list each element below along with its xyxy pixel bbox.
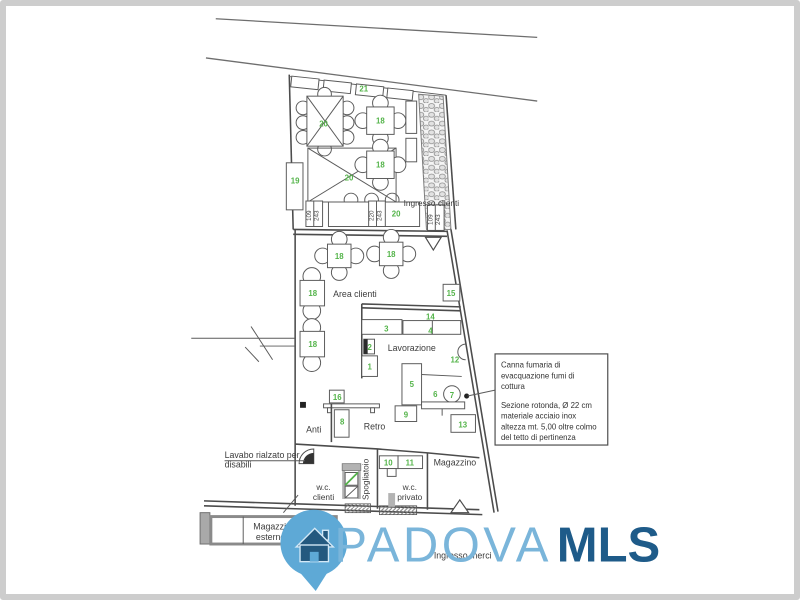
green-label-2: 2: [367, 343, 372, 352]
label-wc-clienti-1: w.c.: [315, 482, 330, 492]
bottom-rooms: [295, 444, 479, 513]
anti-door: [299, 449, 314, 464]
label-wc-privato-2: privato: [397, 492, 422, 502]
dim-243-1: 243: [314, 210, 321, 221]
green-label-21: 21: [359, 84, 368, 93]
note-line-2: evacquazione fumi di: [501, 371, 575, 380]
green-label-7: 7: [450, 391, 455, 400]
counter-3: [362, 320, 402, 335]
green-label-11: 11: [406, 459, 415, 468]
floor-plan-page: 21 20 18 18 20 19 20 18 18 18 18 15 3 14…: [0, 0, 800, 600]
label-ingresso-clienti: Ingresso clienti: [404, 198, 460, 208]
label-lavabo-1: Lavabo rialzato per: [225, 450, 300, 460]
note-line-6: altezza mt. 5,00 oltre colmo: [501, 422, 597, 431]
label-wc-clienti-2: clienti: [313, 492, 334, 502]
green-label-16: 16: [333, 393, 342, 402]
label-lavorazione: Lavorazione: [388, 343, 436, 353]
storefront-row: [293, 201, 447, 250]
green-label-8: 8: [340, 417, 345, 426]
label-anti: Anti: [306, 424, 321, 434]
bottom-wall-inner: [204, 501, 479, 510]
green-label-6: 6: [433, 390, 438, 399]
green-label-3: 3: [384, 324, 389, 333]
green-label-14: 14: [426, 313, 435, 322]
label-area-clienti: Area clienti: [333, 289, 377, 299]
label-lavabo-2: disabili: [225, 460, 252, 470]
right-main-wall-inner: [447, 230, 494, 512]
dim-243-3: 243: [435, 214, 442, 225]
green-label-15: 15: [447, 289, 456, 298]
note-line-1: Canna fumaria di: [501, 361, 561, 370]
shower-fixture: [342, 464, 361, 499]
note-line-7: del tetto di pertinenza: [501, 433, 576, 442]
green-label-4: 4: [428, 326, 433, 335]
green-label-13: 13: [458, 420, 467, 429]
logo-text-padova: PADOVA: [334, 519, 552, 573]
green-label-5: 5: [410, 380, 415, 389]
green-label-18-wall2: 18: [308, 340, 317, 349]
kitchen: [362, 304, 476, 432]
label-wc-privato-1: w.c.: [402, 482, 417, 492]
green-label-18-wall1: 18: [308, 289, 317, 298]
door-sill-1: [345, 504, 370, 513]
note-line-4: Sezione rotonda, Ø 22 cm: [501, 401, 592, 410]
column-dot: [300, 402, 306, 408]
green-label-9: 9: [404, 411, 409, 420]
green-label-20-pergola: 20: [345, 173, 354, 182]
dim-109-2: 109: [427, 214, 434, 225]
label-retro: Retro: [364, 421, 386, 431]
terrace-strip-19: [286, 163, 303, 210]
right-main-wall-outer: [451, 229, 498, 511]
door-post: [388, 493, 395, 507]
label-spogliatoio: Spogliatoio: [361, 458, 371, 500]
green-label-20-storefront: 20: [392, 210, 401, 219]
green-label-1: 1: [367, 363, 372, 372]
green-label-18-terrace2: 18: [376, 161, 385, 170]
floor-plan-svg: 21 20 18 18 20 19 20 18 18 18 18 15 3 14…: [6, 6, 794, 594]
green-label-19: 19: [291, 176, 300, 185]
door-sill-2: [379, 506, 416, 515]
green-label-10: 10: [384, 459, 393, 468]
green-label-20-table: 20: [319, 120, 328, 129]
note-line-5: materiale acciaio inox: [501, 412, 576, 421]
padova-mls-logo: PADOVA MLS: [280, 510, 660, 591]
label-magazzino: Magazzino: [434, 458, 477, 468]
note-line-3: cottura: [501, 382, 526, 391]
dim-243-2: 243: [376, 210, 383, 221]
green-label-18-round2: 18: [387, 250, 396, 259]
bottom-wall-outer: [204, 506, 482, 515]
client-entry-arrow: [425, 237, 441, 250]
dim-109-1: 109: [306, 210, 313, 221]
green-label-18-terrace1: 18: [376, 117, 385, 126]
terrace-bench-1: [406, 101, 417, 133]
logo-text-mls: MLS: [557, 519, 660, 573]
goods-entry-arrow: [451, 500, 469, 513]
dim-220: 220: [369, 210, 376, 221]
green-label-18-round1: 18: [335, 252, 344, 261]
left-break-lines: [191, 326, 295, 361]
kitchen-lower-counter: [422, 402, 465, 409]
green-label-12: 12: [451, 356, 460, 365]
building-walls: [204, 229, 498, 514]
terrace-bench-2: [406, 138, 417, 162]
